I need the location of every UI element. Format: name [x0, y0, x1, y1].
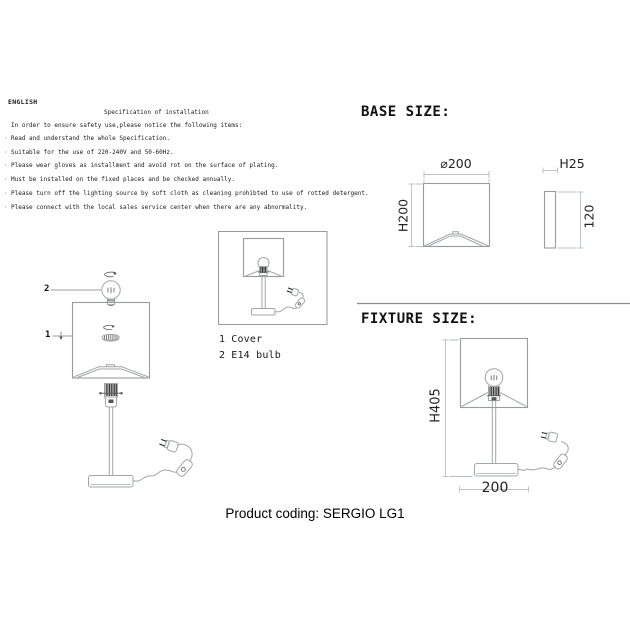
power-plug-icon	[159, 437, 179, 453]
bullet-icon: ·	[4, 163, 8, 170]
inline-switch-icon	[175, 458, 193, 478]
spec-item: · Suitable for the use of 220-240V and 5…	[4, 150, 174, 157]
spec-item-text: Please turn off the lighting source by s…	[11, 191, 369, 198]
spec-item: · Read and understand the whole Specific…	[4, 136, 170, 143]
spec-item-text: Suitable for the use of 220-240V and 50-…	[11, 150, 174, 157]
legend-label: Cover	[231, 334, 262, 345]
power-plug-icon	[286, 286, 299, 296]
dim-120	[558, 192, 584, 248]
bullet-icon: ·	[4, 205, 8, 212]
thumbnail-frame	[219, 232, 328, 325]
bullet-icon: ·	[4, 177, 8, 184]
spec-item: · Please turn off the lighting source by…	[4, 191, 369, 198]
callout-number-bulb: 2	[44, 284, 49, 294]
dim-label-diameter-200: ⌀200	[436, 158, 476, 171]
power-cord	[275, 307, 297, 312]
lamp-pole	[492, 401, 495, 464]
dim-height-200	[409, 184, 423, 247]
lamp-pole	[109, 407, 112, 475]
power-cord	[518, 442, 568, 471]
cover-leader-line	[53, 332, 73, 341]
spec-item: · Must be installed on the fixed places …	[4, 177, 235, 184]
spec-item-text: Must be installed on the fixed places an…	[11, 177, 235, 184]
bullet-icon: ·	[4, 150, 8, 157]
spec-item-text: Please wear gloves as installment and av…	[11, 163, 278, 170]
language-label: ENGLISH	[8, 98, 38, 106]
socket-ring-icon	[102, 334, 119, 341]
spec-item-text: Please connect with the local sales serv…	[11, 205, 307, 212]
power-plug-icon	[540, 430, 558, 442]
legend-num: 1	[219, 334, 225, 345]
bullet-icon: ·	[4, 191, 8, 198]
socket-icon	[258, 267, 269, 276]
inline-switch-icon	[294, 297, 305, 309]
bullet-icon: ·	[4, 136, 8, 143]
fixture-size-heading: FIXTURE SIZE:	[361, 311, 477, 327]
dim-label-120: 120	[584, 197, 597, 237]
dim-label-h405: H405	[430, 384, 443, 428]
product-coding: Product coding: SERGIO LG1	[0, 506, 630, 521]
dim-h25	[543, 168, 558, 174]
inline-switch-icon	[552, 453, 568, 471]
spec-item-text: Read and understand the whole Specificat…	[11, 136, 170, 143]
legend-label: E14 bulb	[231, 350, 281, 361]
lamp-base	[475, 464, 519, 477]
spec-intro: In order to ensure safety use,please not…	[11, 122, 242, 129]
cover-drawing	[73, 303, 150, 379]
dim-label-h25: H25	[557, 158, 587, 171]
spec-title: Specification of installation	[104, 109, 209, 116]
dim-label-200: 200	[473, 481, 517, 495]
specification-sheet: ENGLISH Specification of installation In…	[0, 0, 630, 630]
lamp-socket-icon	[100, 384, 123, 408]
technical-drawing-canvas	[0, 0, 630, 630]
rotate-arrow-icon	[105, 272, 117, 277]
socket-icon	[487, 387, 501, 401]
dim-diameter-200	[424, 171, 489, 183]
bulb-icon	[102, 281, 120, 306]
callout-number-cover: 1	[45, 330, 50, 340]
dim-label-h200: H200	[398, 196, 411, 236]
lamp-base	[89, 476, 134, 488]
spec-item: · Please wear gloves as installment and …	[4, 163, 278, 170]
lamp-pole	[262, 276, 265, 309]
fixture-drawing	[443, 339, 569, 493]
bulb-icon	[485, 369, 503, 387]
legend-item-cover: 1 Cover	[219, 334, 262, 345]
exploded-view-drawing	[51, 272, 194, 487]
lamp-base	[252, 309, 276, 316]
spec-item: · Please connect with the local sales se…	[4, 205, 307, 212]
legend-item-bulb: 2 E14 bulb	[219, 350, 281, 361]
base-size-heading: BASE SIZE:	[361, 104, 450, 120]
dim-h405	[443, 340, 473, 477]
base-front-view-drawing	[409, 171, 490, 247]
assembled-view-thumbnail	[219, 232, 328, 325]
base-side-view-drawing	[543, 168, 584, 249]
legend-num: 2	[219, 350, 225, 361]
